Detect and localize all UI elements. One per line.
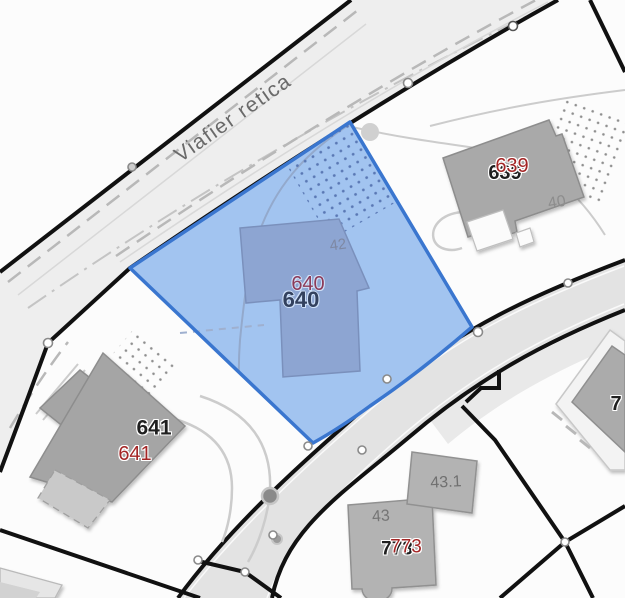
building-40-label: 40 (547, 194, 567, 213)
parcel-641-bold-label: 641 (136, 418, 171, 439)
parcel-7xx-partial-label: 7 (610, 394, 621, 414)
building-42-label: 42 (329, 236, 348, 253)
tree-dot (361, 123, 379, 141)
parcel-773-red-label: 773 (390, 538, 422, 557)
building-43-label: 43 (372, 508, 391, 525)
parcel-641-red-label: 641 (118, 444, 151, 464)
manhole-large (262, 488, 278, 504)
map-canvas[interactable]: Viafier retica 640 640 639 639 641 641 7… (0, 0, 625, 598)
building-43-1-label: 43.1 (430, 474, 462, 492)
parcel-640-bold-label: 640 (283, 289, 320, 311)
parcel-639-red-label: 639 (495, 156, 528, 176)
